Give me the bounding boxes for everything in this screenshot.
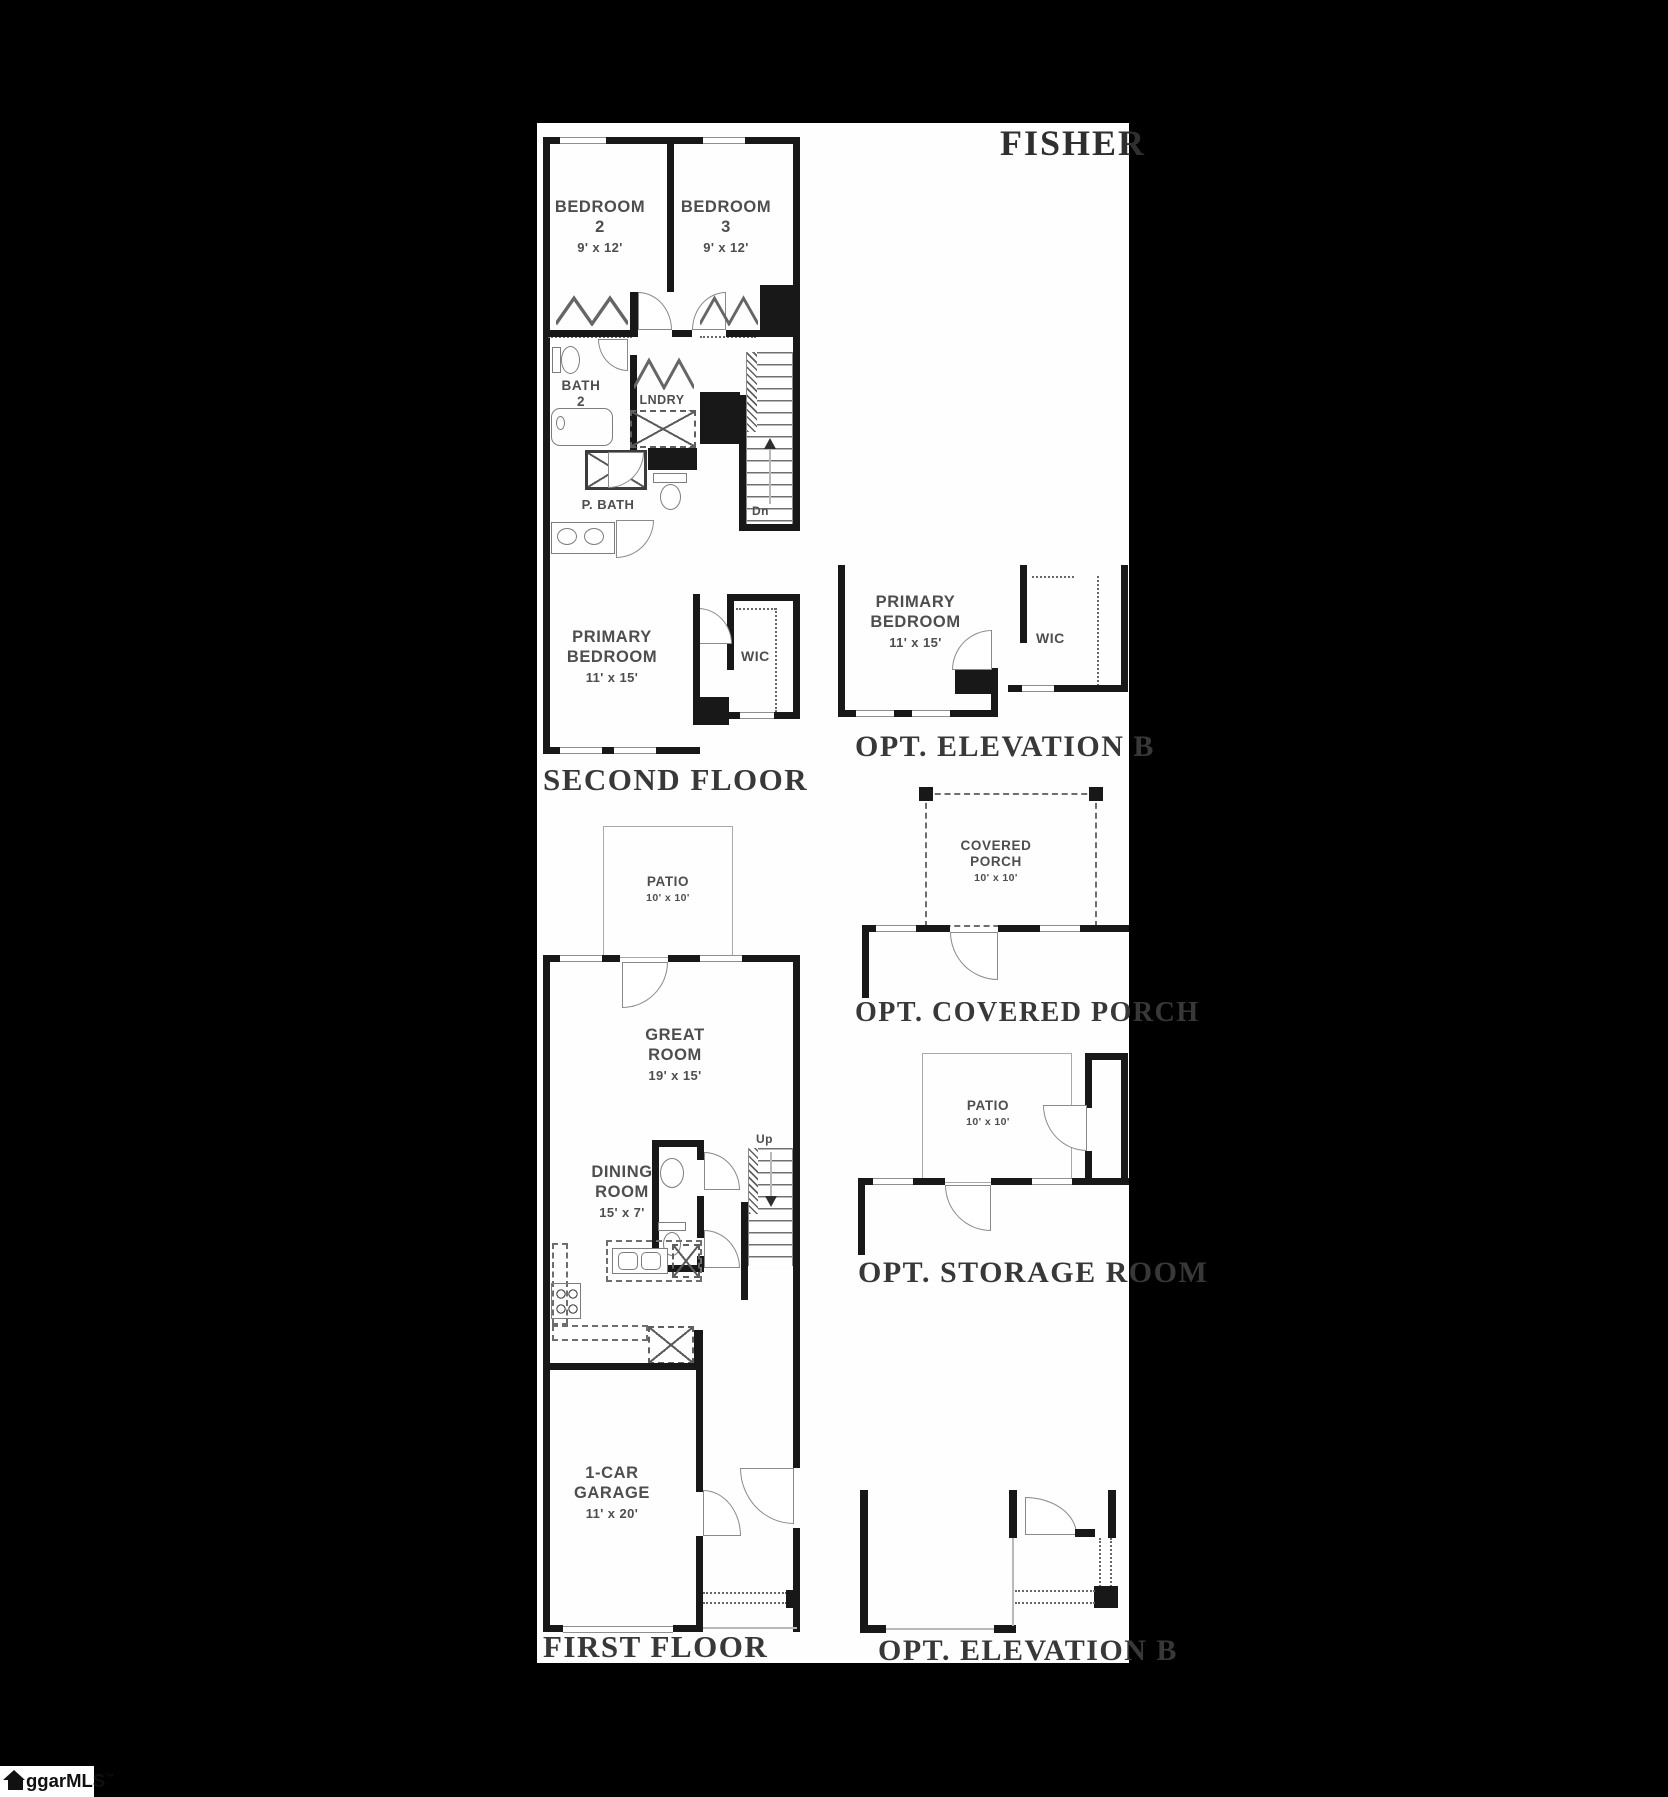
wall: [741, 1202, 748, 1300]
wall: [838, 565, 845, 717]
sink-icon: [660, 1158, 684, 1188]
window: [560, 955, 602, 962]
wall: [697, 1140, 704, 1160]
kitchen-counter: [552, 1325, 648, 1341]
toilet-icon: [653, 473, 687, 483]
wall: [697, 1196, 704, 1238]
wall: [994, 1625, 1016, 1633]
house-icon: [2, 1770, 26, 1794]
window: [1040, 925, 1080, 932]
threshold-line: [1015, 1590, 1095, 1592]
window: [856, 710, 894, 717]
closet-rod: [1097, 576, 1099, 686]
threshold-line: [1015, 1602, 1095, 1604]
bifold-door-icon: [634, 356, 694, 390]
wall: [693, 697, 729, 725]
opt-elevation-b-title: OPT. ELEVATION B: [855, 730, 1155, 764]
wall: [1009, 1490, 1017, 1538]
post: [786, 1590, 800, 1608]
window: [912, 710, 950, 717]
stairs-hatch: [749, 1148, 758, 1214]
threshold-line: [703, 1592, 787, 1594]
dishwasher-icon: [672, 1244, 700, 1278]
wall: [543, 955, 550, 1632]
primary-bedroom-label: PRIMARY BEDROOM 11' x 15': [858, 593, 973, 650]
opt-storage-room-title: OPT. STORAGE ROOM: [858, 1256, 1208, 1290]
stair-direction-line: [769, 448, 771, 504]
fridge-icon: [648, 1326, 694, 1364]
window: [560, 137, 606, 144]
wall: [726, 330, 800, 337]
great-room-label: GREAT ROOM 19' x 15': [640, 1026, 710, 1083]
opt-elevation-b-title: OPT. ELEVATION B: [878, 1634, 1178, 1668]
wall: [793, 594, 800, 719]
wall: [739, 524, 800, 531]
arrow-down-icon: [765, 1196, 777, 1207]
closet-rod: [775, 608, 777, 712]
tub-drain-icon: [556, 416, 565, 430]
arrow-up-icon: [764, 438, 776, 449]
bifold-door-icon: [700, 294, 758, 326]
post: [1089, 787, 1103, 801]
wall: [1075, 1529, 1095, 1537]
toilet-icon: [658, 1222, 686, 1231]
toilet-icon: [660, 484, 681, 510]
wall: [760, 285, 800, 332]
laundry-label: LNDRY: [630, 393, 694, 407]
wall: [696, 1536, 703, 1632]
wic-label: WIC: [1036, 630, 1065, 646]
dining-room-label: DINING ROOM 15' x 7': [587, 1163, 657, 1220]
primary-bedroom-label: PRIMARY BEDROOM 11' x 15': [562, 628, 662, 685]
stairs-dn-label: Dn: [752, 504, 769, 518]
threshold-line: [1110, 1538, 1112, 1590]
stairs-up-label: Up: [756, 1132, 773, 1146]
wic-label: WIC: [741, 648, 770, 664]
wall: [991, 668, 998, 717]
second-floor-title: SECOND FLOOR: [543, 762, 808, 798]
window: [876, 925, 916, 932]
garage-label: 1-CAR GARAGE 11' x 20': [572, 1464, 652, 1521]
toilet-icon: [561, 346, 580, 374]
stair-direction-line: [770, 1152, 772, 1198]
garage-door: [886, 1628, 996, 1630]
wall: [860, 1490, 868, 1633]
mls-logo-text: ggarMLS™: [26, 1770, 114, 1792]
window: [560, 747, 602, 754]
bifold-door-icon: [556, 294, 628, 326]
sink-icon: [557, 528, 577, 545]
wall: [955, 668, 991, 694]
wall: [860, 1625, 886, 1633]
post: [1094, 1586, 1118, 1608]
window: [700, 955, 742, 962]
wall: [543, 330, 638, 337]
wall: [739, 395, 746, 527]
washer-dryer-icon: [630, 410, 696, 448]
wall: [858, 1178, 865, 1255]
closet-rod: [736, 608, 776, 610]
wall: [1108, 1490, 1116, 1538]
wall: [1020, 565, 1027, 643]
post: [919, 787, 933, 801]
wall: [667, 144, 674, 292]
bedroom3-label: BEDROOM 3 9' x 12': [676, 198, 776, 255]
wall: [1121, 1053, 1128, 1185]
wall: [793, 1528, 800, 1632]
wall-line: [1012, 1538, 1014, 1626]
floorplan-sheet: FISHER BEDROOM 2 9' x 12' BEDROOM 3 9' x…: [0, 0, 1668, 1797]
wall: [652, 1140, 702, 1147]
wall: [793, 955, 800, 1468]
primary-bath-label: P. BATH: [568, 497, 648, 512]
window: [1022, 685, 1054, 692]
window: [873, 1178, 913, 1185]
wall: [1085, 1060, 1092, 1108]
wall: [696, 1370, 703, 1492]
wall: [543, 1363, 703, 1370]
closet-shelf: [1032, 576, 1074, 578]
window: [703, 137, 745, 144]
wall: [648, 448, 697, 470]
threshold-line: [703, 1602, 787, 1604]
wall: [693, 594, 700, 700]
window: [1032, 1178, 1072, 1185]
mls-logo: ggarMLS™: [0, 1766, 94, 1797]
stove-icon: [551, 1283, 581, 1319]
toilet-icon: [552, 347, 561, 373]
threshold-line: [1099, 1538, 1101, 1590]
wall: [862, 925, 869, 998]
bath2-label: BATH 2: [556, 378, 606, 410]
sink-icon: [641, 1252, 661, 1270]
wall: [672, 330, 692, 337]
wall: [700, 392, 740, 444]
wall: [1121, 565, 1128, 692]
first-floor-title: FIRST FLOOR: [543, 1629, 768, 1665]
wall: [727, 594, 800, 601]
patio-label: PATIO 10' x 10': [958, 1098, 1018, 1129]
trademark-symbol: ™: [105, 1772, 114, 1782]
plan-name-title: FISHER: [1000, 122, 1146, 164]
stairs-hatch: [747, 352, 757, 432]
sink-icon: [618, 1252, 638, 1270]
window: [614, 747, 656, 754]
patio-label: PATIO 10' x 10': [640, 874, 696, 905]
covered-porch-label: COVERED PORCH 10' x 10': [950, 838, 1042, 885]
opt-covered-porch-title: OPT. COVERED PORCH: [855, 997, 1200, 1029]
sink-icon: [584, 528, 604, 545]
bedroom2-label: BEDROOM 2 9' x 12': [548, 198, 652, 255]
window: [740, 712, 774, 719]
